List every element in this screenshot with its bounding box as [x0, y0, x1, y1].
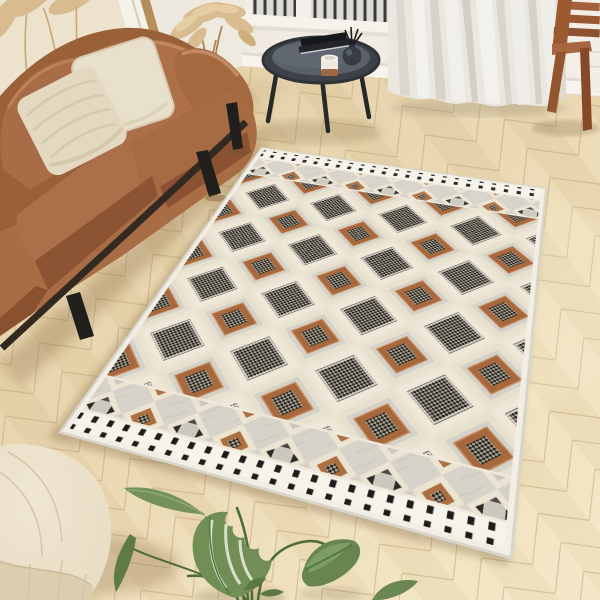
plant-leaf-right [302, 539, 360, 586]
cream-pouf [0, 444, 180, 600]
living-room-photo [0, 0, 600, 600]
plant-leaf-bottom-right [372, 580, 418, 600]
foreground-layer [0, 0, 600, 600]
plant-leaf-upper-left [124, 487, 206, 516]
